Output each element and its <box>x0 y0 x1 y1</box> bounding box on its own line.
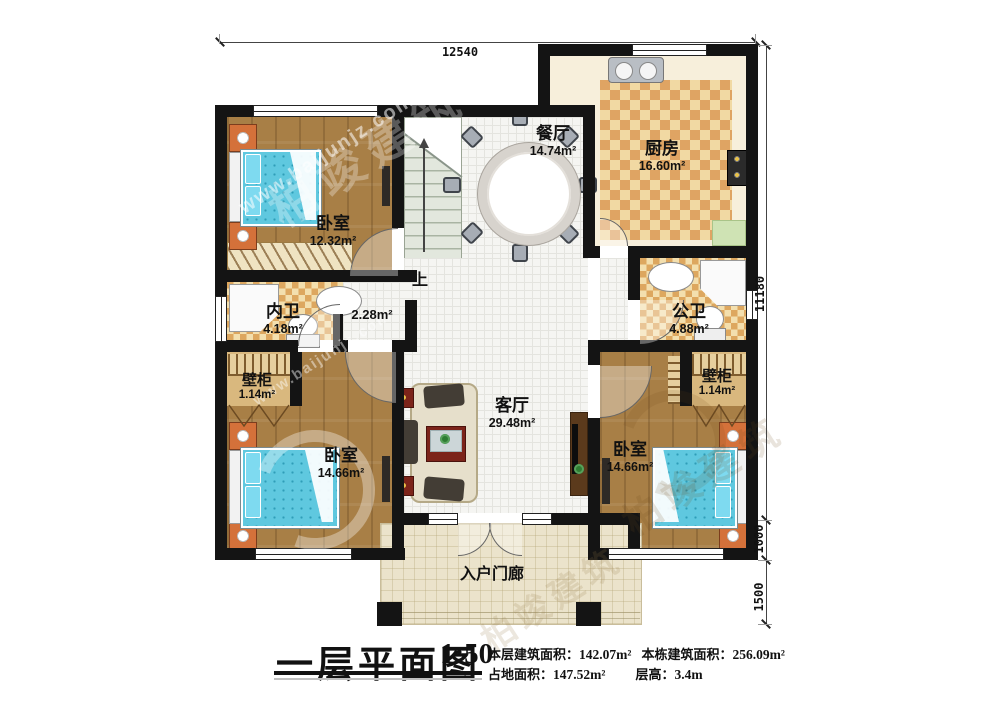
room-label-kitchen: 厨房 16.60m² <box>639 139 686 173</box>
porch-pillar <box>576 602 601 626</box>
dining-table <box>478 143 580 245</box>
window <box>632 44 707 56</box>
room-label-inner-bath: 内卫 4.18m² <box>263 302 303 336</box>
wall-segment <box>680 352 692 406</box>
dining-chair <box>443 177 461 193</box>
title-underline <box>274 671 482 675</box>
wall-segment <box>588 340 758 352</box>
room-area: 4.18m² <box>263 322 303 336</box>
dim-label-right-porch: 1500 <box>752 567 766 627</box>
wall-segment <box>215 340 298 352</box>
wall-segment <box>628 246 640 300</box>
wall-segment <box>588 418 600 560</box>
room-name: 客厅 <box>489 396 536 416</box>
room-area: 14.74m² <box>530 144 577 158</box>
room-name: 卧室 <box>310 214 357 234</box>
dim-label-top: 12540 <box>420 45 500 59</box>
stats-line-1: 本层建筑面积：142.07m²本栋建筑面积：256.09m² <box>488 645 808 665</box>
footprint-label: 占地面积： <box>488 667 553 682</box>
floor-area-value: 142.07m² <box>579 647 631 662</box>
pillow <box>715 452 731 484</box>
porch-step-line2 <box>380 618 640 619</box>
total-area-label: 本栋建筑面积： <box>641 647 732 662</box>
stairs-up-label: 上 <box>412 266 428 290</box>
room-area: 1.14m² <box>239 389 275 402</box>
tv-bedroom-top-left <box>382 166 390 206</box>
room-label-closet-left: 壁柜 1.14m² <box>239 372 275 402</box>
hall-area-label: 2.28m² <box>351 308 392 323</box>
window <box>255 548 352 560</box>
stove-burner <box>733 155 741 163</box>
room-name: 餐厅 <box>530 124 577 144</box>
room-label-public-bath: 公卫 4.88m² <box>669 302 709 336</box>
height-label: 层高： <box>635 667 674 682</box>
sofa-cushion <box>423 476 465 501</box>
tv-bedroom-bottom-left <box>382 456 390 502</box>
room-name: 卧室 <box>607 440 654 460</box>
room-name: 厨房 <box>639 139 686 159</box>
sink-basin <box>639 62 657 80</box>
window <box>253 105 378 117</box>
room-area: 16.60m² <box>639 159 686 173</box>
room-name: 公卫 <box>669 302 709 322</box>
room-label-porch: 入户门廊 <box>460 566 524 584</box>
nightstand <box>229 124 257 152</box>
window <box>522 513 552 525</box>
window <box>215 296 227 342</box>
nightstand <box>229 222 257 250</box>
room-label-dining: 餐厅 14.74m² <box>530 124 577 158</box>
floor-plan: www.baijunjz.com 柏竣建筑 www.baijunjz.com 柏… <box>0 0 1000 706</box>
porch-step-line <box>380 612 640 613</box>
wall-segment <box>392 105 404 228</box>
pillow <box>245 452 261 484</box>
room-area: 4.88m² <box>669 322 709 336</box>
stats-line-2: 占地面积：147.52m²层高：3.4m <box>488 665 808 685</box>
wall-segment <box>640 246 758 258</box>
room-area: 12.32m² <box>310 234 357 248</box>
dining-chair <box>512 244 528 262</box>
room-name: 壁柜 <box>699 368 735 385</box>
wall-segment <box>628 344 640 352</box>
plan-scale: 1:50 <box>440 638 493 671</box>
height-value: 3.4m <box>674 667 702 682</box>
room-area: 1.14m² <box>699 385 735 398</box>
dim-extension <box>219 34 220 44</box>
dimension-line-top <box>220 42 756 43</box>
window <box>608 548 724 560</box>
wall-segment <box>290 352 302 406</box>
dim-extension <box>758 45 772 46</box>
hall-area: 2.28m² <box>351 308 392 323</box>
pillow <box>245 154 261 184</box>
room-name: 内卫 <box>263 302 303 322</box>
footprint-value: 147.52m² <box>553 667 605 682</box>
floor-corridor <box>600 258 628 352</box>
room-label-living: 客厅 29.48m² <box>489 396 536 430</box>
dim-extension <box>755 34 756 44</box>
bifold-door-right <box>692 404 746 428</box>
sink-basin <box>615 62 633 80</box>
kitchen-mat <box>712 220 746 246</box>
plant <box>440 434 450 444</box>
room-area: 14.66m² <box>607 460 654 474</box>
stair-arrow2 <box>423 148 425 252</box>
room-area: 29.48m² <box>489 416 536 430</box>
total-area-value: 256.09m² <box>732 647 784 662</box>
title-underline-shadow <box>274 678 482 680</box>
room-label-bedroom-bottom-right: 卧室 14.66m² <box>607 440 654 474</box>
dim-label-right-main: 11180 <box>753 264 767 324</box>
floor-area-label: 本层建筑面积： <box>488 647 579 662</box>
plan-stats: 本层建筑面积：142.07m²本栋建筑面积：256.09m² 占地面积：147.… <box>488 645 808 685</box>
window <box>428 513 458 525</box>
plant <box>574 464 584 474</box>
room-label-bedroom-top-left: 卧室 12.32m² <box>310 214 357 248</box>
kitchen-stove <box>727 150 748 186</box>
room-name: 卧室 <box>318 446 365 466</box>
bifold-door-left <box>228 404 290 428</box>
stair-arrow-head2 <box>419 138 429 148</box>
pillow <box>715 486 731 518</box>
dimension-line-right <box>766 45 767 625</box>
porch-pillar <box>377 602 402 626</box>
wall-segment <box>583 105 595 258</box>
room-name: 壁柜 <box>239 372 275 389</box>
pillow <box>245 486 261 518</box>
pillow <box>245 186 261 216</box>
dim-label-right-bedroom: 1000 <box>752 509 766 569</box>
kitchen-sink <box>608 57 664 83</box>
room-area: 14.66m² <box>318 466 365 480</box>
wall-segment <box>583 246 600 258</box>
sofa-cushion <box>423 383 465 408</box>
sink-public-bath <box>648 262 694 292</box>
room-label-bedroom-bottom-left: 卧室 14.66m² <box>318 446 365 480</box>
room-label-closet-right: 壁柜 1.14m² <box>699 368 735 398</box>
stove-burner <box>733 171 741 179</box>
room-name: 入户门廊 <box>460 566 524 583</box>
